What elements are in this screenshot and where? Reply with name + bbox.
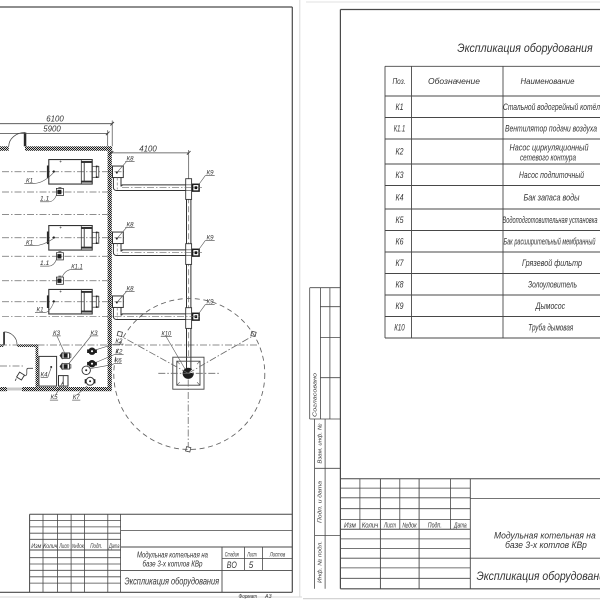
svg-text:К9: К9 [396,301,404,311]
svg-text:сетевого контура: сетевого контура [520,152,576,162]
svg-text:К6: К6 [396,236,404,246]
svg-text:Колич: Колич [362,523,379,530]
svg-text:Изм: Изм [344,523,356,530]
svg-text:Листов: Листов [269,552,285,558]
svg-text:Взам. инф. №: Взам. инф. № [317,424,323,464]
svg-text:Водоподготовительная установка: Водоподготовительная установка [503,215,598,225]
svg-text:Золоуловитель: Золоуловитель [528,279,577,289]
svg-text:базе 3-х котлов КВр: базе 3-х котлов КВр [143,560,204,569]
svg-text:Подп. и дата: Подп. и дата [317,481,323,523]
svg-text:К1: К1 [396,102,404,112]
svg-text:Поз.: Поз. [393,77,406,86]
svg-text:К8: К8 [396,279,404,289]
svg-text:Формат: Формат [239,594,258,600]
svg-text:Наименование: Наименование [521,77,576,86]
svg-text:Инф. № подл.: Инф. № подл. [317,541,323,583]
svg-text:Дата: Дата [453,523,466,530]
svg-text:№док: №док [72,543,85,550]
svg-text:Насос подпиточный: Насос подпиточный [519,170,584,180]
svg-text:А3: А3 [264,594,272,600]
svg-text:Стальной водогрейный котёл: Стальной водогрейный котёл [503,102,600,112]
svg-text:Экспликация оборудования: Экспликация оборудования [125,576,220,587]
svg-text:5: 5 [249,560,254,571]
svg-text:Экспликация оборудования: Экспликация оборудования [457,43,592,55]
svg-text:Лист: Лист [383,523,396,530]
svg-text:К3: К3 [396,170,404,180]
svg-text:Бак расширительный мембранный: Бак расширительный мембранный [504,236,596,246]
svg-text:базе 3-х котлов КВр: базе 3-х котлов КВр [505,540,587,550]
svg-text:Изм: Изм [31,544,41,550]
svg-text:К10: К10 [394,322,405,332]
svg-text:Обозначение: Обозначение [428,77,481,86]
svg-text:Экспликация оборудования: Экспликация оборудования [477,571,600,583]
svg-text:Согласовано: Согласовано [312,372,318,417]
svg-text:5900: 5900 [43,124,61,133]
svg-text:Лист: Лист [59,544,70,550]
svg-text:Грязевой фильтр: Грязевой фильтр [522,258,582,268]
svg-text:Вентилятор подачи воздуха: Вентилятор подачи воздуха [505,123,597,133]
svg-text:Стадия: Стадия [225,552,239,558]
svg-text:Лист: Лист [247,552,257,558]
svg-text:Труба дымовая: Труба дымовая [528,322,573,332]
svg-text:Насос циркуляционный: Насос циркуляционный [510,143,589,153]
svg-text:К2: К2 [396,147,404,157]
svg-text:К4: К4 [396,192,404,202]
svg-text:6100: 6100 [46,115,64,124]
svg-text:Модульная котельная на: Модульная котельная на [137,551,209,560]
svg-text:Подп.: Подп. [428,522,442,530]
svg-text:Бак запаса воды: Бак запаса воды [524,192,580,202]
svg-text:№док: №док [402,522,417,530]
svg-text:Модульная котельная на: Модульная котельная на [494,531,596,541]
svg-text:4100: 4100 [139,144,157,153]
svg-text:К7: К7 [396,258,405,268]
svg-text:Дымосос: Дымосос [535,301,566,311]
svg-text:К5: К5 [396,215,405,225]
svg-text:ВО: ВО [227,560,237,571]
svg-text:Подп.: Подп. [90,544,102,550]
svg-text:Колич: Колич [43,544,57,550]
svg-text:К1.1: К1.1 [394,123,406,133]
svg-text:Дата: Дата [108,544,120,550]
